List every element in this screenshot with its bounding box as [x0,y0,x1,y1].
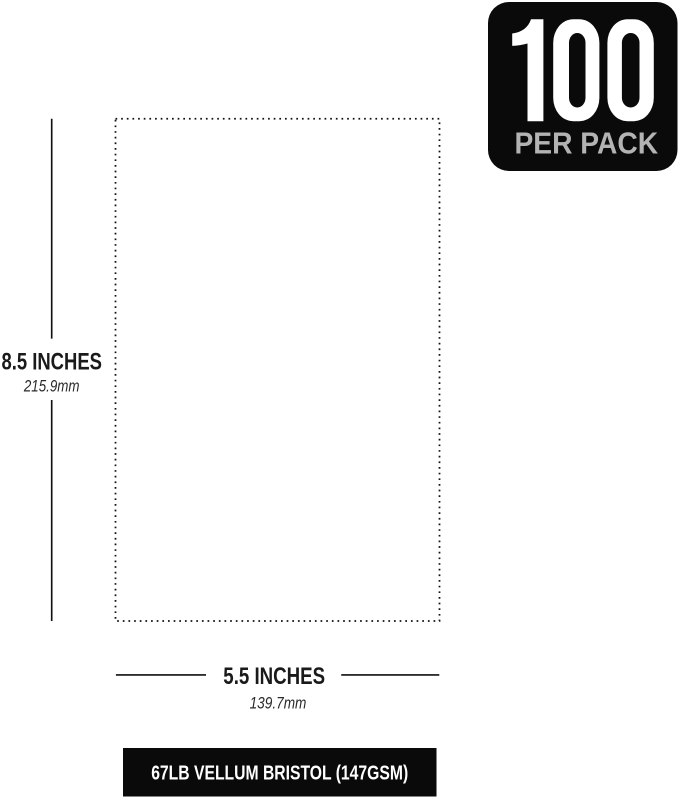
svg-text:5.5 INCHES: 5.5 INCHES [223,663,325,690]
svg-text:PER PACK: PER PACK [514,127,658,161]
svg-text:215.9mm: 215.9mm [23,377,79,396]
svg-text:139.7mm: 139.7mm [250,693,307,712]
svg-text:67LB VELLUM BRISTOL (147GSM): 67LB VELLUM BRISTOL (147GSM) [151,762,408,785]
svg-text:8.5 INCHES: 8.5 INCHES [1,349,102,376]
